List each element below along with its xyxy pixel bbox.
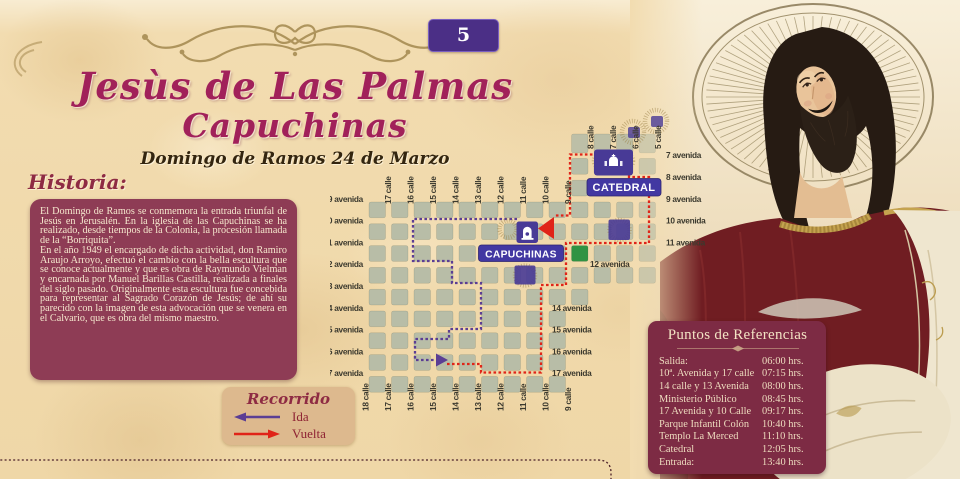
reference-point-label: Salida: (659, 356, 762, 367)
reference-time: 07:15 hrs. (762, 368, 816, 379)
corner-curl-ornament (0, 36, 44, 80)
street-label: 8 calle (586, 125, 596, 149)
reference-row: Templo La Merced11:10 hrs. (659, 431, 816, 444)
street-label: 17 avenida (552, 368, 592, 378)
street-label: 17 calle (383, 383, 393, 411)
vuelta-arrow-icon (232, 428, 284, 440)
reference-time: 10:40 hrs. (762, 419, 816, 430)
reference-row: Entrada:13:40 hrs. (659, 456, 816, 469)
street-label: 16 avenida (330, 346, 364, 356)
street-label: 12 avenida (330, 259, 364, 269)
reference-time: 11:10 hrs. (762, 431, 816, 442)
street-label: 9 calle (563, 387, 573, 411)
referencias-panel: Puntos de Referencias Salida:06:00 hrs.1… (648, 321, 826, 474)
street-label: 6 calle (631, 125, 641, 149)
street-label: 11 avenida (330, 237, 364, 247)
page-subtitle: Domingo de Ramos 24 de Marzo (40, 149, 550, 169)
reference-row: Ministerio Público08:45 hrs. (659, 393, 816, 406)
street-label: 9 calle (563, 180, 573, 204)
street-label: 16 calle (406, 383, 416, 411)
street-label: 9 avenida (666, 194, 702, 204)
ida-arrow-icon (232, 411, 284, 423)
historia-paragraph-2: En el año 1949 el encargado de dicha act… (40, 246, 287, 324)
legend-title: Recorrido (222, 390, 355, 408)
reference-row: Catedral12:05 hrs. (659, 443, 816, 456)
poster-page: CATEDRALCAPUCHINAS17 calle16 calle15 cal… (0, 0, 960, 479)
reference-point-label: Ministerio Público (659, 394, 762, 405)
page-number-badge: 5 (428, 19, 499, 52)
recorrido-legend: Recorrido Ida Vuelta (222, 387, 355, 445)
street-label: 14 avenida (552, 303, 592, 313)
reference-time: 08:45 hrs. (762, 394, 816, 405)
reference-time: 12:05 hrs. (762, 444, 816, 455)
page-title-line1: Jesùs de Las Palmas (40, 64, 550, 108)
street-label: 11 avenida (666, 237, 706, 247)
reference-time: 06:00 hrs. (762, 356, 816, 367)
legend-ida-label: Ida (292, 409, 309, 425)
reference-point-label: 14 calle y 13 Avenida (659, 381, 762, 392)
street-label: 18 calle (361, 383, 371, 411)
street-label: 14 calle (451, 176, 461, 204)
street-label: 15 calle (428, 176, 438, 204)
street-label: 5 calle (653, 125, 663, 149)
street-label: 16 avenida (552, 346, 592, 356)
street-label: 13 calle (473, 176, 483, 204)
historia-panel: El Domingo de Ramos se conmemora la entr… (30, 199, 297, 380)
street-label: 13 calle (473, 383, 483, 411)
street-label: 16 calle (406, 176, 416, 204)
street-label: 12 avenida (590, 259, 630, 269)
reference-point-label: 17 Avenida y 10 Calle (659, 406, 762, 417)
reference-row: Salida:06:00 hrs. (659, 355, 816, 368)
historia-paragraph-1: El Domingo de Ramos se conmemora la entr… (40, 207, 287, 246)
street-label: 7 calle (608, 125, 618, 149)
reference-time: 09:17 hrs. (762, 406, 816, 417)
street-label: 8 avenida (666, 172, 702, 182)
reference-row: 10ª. Avenida y 17 calle07:15 hrs. (659, 368, 816, 381)
street-label: 12 calle (496, 176, 506, 204)
street-label: 15 avenida (552, 325, 592, 335)
street-label: 10 calle (541, 176, 551, 204)
referencias-divider (673, 345, 803, 352)
street-label: 14 avenida (330, 303, 364, 313)
page-title-line2: Capuchinas (40, 106, 550, 145)
reference-point-label: Parque Infantil Colón (659, 419, 762, 430)
reference-row: 14 calle y 13 Avenida08:00 hrs. (659, 380, 816, 393)
reference-point-label: Catedral (659, 444, 762, 455)
svg-text:CAPUCHINAS: CAPUCHINAS (485, 250, 557, 261)
street-label: 14 calle (451, 383, 461, 411)
street-label: 10 calle (541, 383, 551, 411)
reference-time: 13:40 hrs. (762, 457, 816, 468)
reference-point-label: 10ª. Avenida y 17 calle (659, 368, 762, 379)
street-label: 7 avenida (666, 150, 702, 160)
street-label: 13 avenida (330, 281, 364, 291)
reference-row: 17 Avenida y 10 Calle09:17 hrs. (659, 405, 816, 418)
legend-vuelta-label: Vuelta (292, 426, 326, 442)
street-label: 9 avenida (330, 194, 364, 204)
street-label: 10 avenida (666, 216, 706, 226)
historia-heading: Historia: (28, 170, 127, 194)
street-label: 17 calle (383, 176, 393, 204)
flourish-ornament (125, 14, 465, 70)
street-label: 11 calle (518, 176, 528, 204)
reference-point-label: Entrada: (659, 457, 762, 468)
street-label: 17 avenida (330, 368, 364, 378)
street-label: 12 calle (496, 383, 506, 411)
street-label: 15 avenida (330, 325, 364, 335)
svg-text:CATEDRAL: CATEDRAL (593, 182, 656, 194)
street-label: 15 calle (428, 383, 438, 411)
reference-time: 08:00 hrs. (762, 381, 816, 392)
street-label: 11 calle (518, 383, 528, 411)
street-label: 10 avenida (330, 216, 364, 226)
reference-point-label: Templo La Merced (659, 431, 762, 442)
referencias-title: Puntos de Referencias (659, 327, 816, 344)
reference-row: Parque Infantil Colón10:40 hrs. (659, 418, 816, 431)
referencias-rows: Salida:06:00 hrs.10ª. Avenida y 17 calle… (659, 355, 816, 468)
